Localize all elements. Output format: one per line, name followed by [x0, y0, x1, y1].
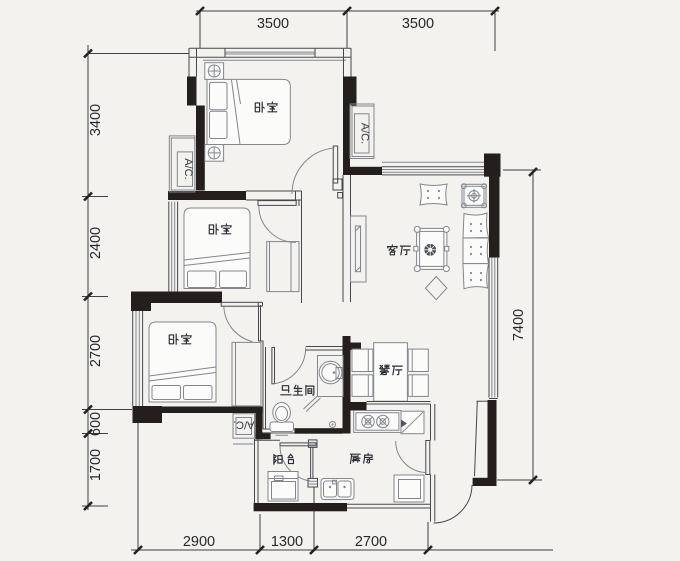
svg-text:2400: 2400 [88, 227, 104, 259]
svg-text:2700: 2700 [88, 335, 104, 367]
svg-text:3500: 3500 [402, 16, 434, 32]
svg-text:2700: 2700 [355, 534, 387, 550]
svg-text:2900: 2900 [183, 534, 215, 550]
svg-text:3500: 3500 [257, 16, 289, 32]
svg-text:1700: 1700 [88, 449, 104, 481]
svg-text:7400: 7400 [511, 309, 527, 341]
svg-text:A/C.: A/C. [233, 419, 254, 431]
svg-text:A/C.: A/C. [359, 123, 371, 144]
svg-text:A/C.: A/C. [182, 158, 194, 179]
svg-text:1300: 1300 [271, 534, 303, 550]
svg-text:600: 600 [88, 412, 104, 436]
svg-text:3400: 3400 [88, 104, 104, 136]
